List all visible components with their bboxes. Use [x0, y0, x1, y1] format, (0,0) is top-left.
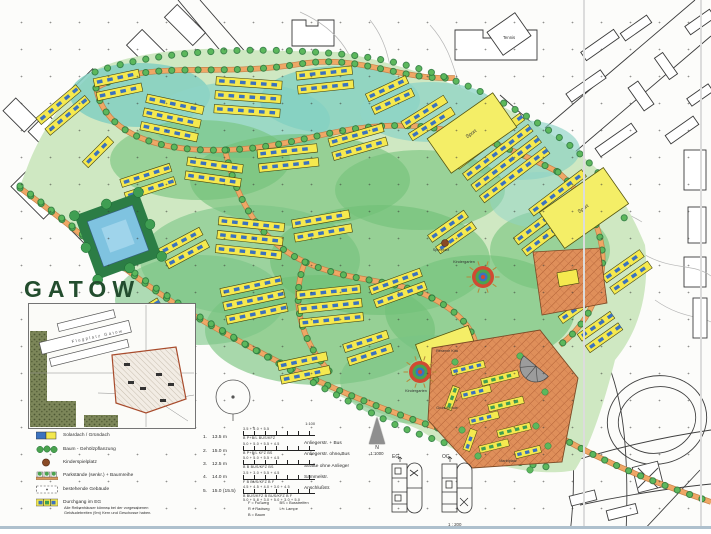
- street-type-list: Anliegerstr. + BusAnliegerstr. ohne BusS…: [304, 438, 350, 494]
- legend-item: Parkstände (senkr.) + Baumreihe: [36, 469, 133, 482]
- map-scale: 1:1000: [364, 451, 390, 456]
- plan-title: GATOW: [24, 276, 140, 303]
- street-type: Anschlußstr.: [304, 483, 350, 494]
- legend-item: bestehende Gebäude: [36, 483, 133, 496]
- map-label: Reserve Kita: [436, 349, 459, 353]
- legend-swatch-playground: [36, 458, 58, 467]
- abbrev-entry: L = Lampe: [280, 506, 309, 512]
- legend-item: Solardach / Gründach: [36, 429, 133, 442]
- north-arrow: N 1:1000: [364, 417, 390, 456]
- legend-label: Kinderspielplatz: [63, 460, 97, 465]
- legend-swatch-trees: [36, 445, 58, 454]
- legend-item: Baum - Gehölzpflanzung: [36, 442, 133, 455]
- legend-label: Solardach / Gründach: [63, 433, 110, 438]
- map-label: Kindergarten: [453, 260, 475, 264]
- legend-swatch-parking: [36, 471, 58, 480]
- abbreviation-list: F = FußwegR = RadwegB = BaumBS = Busstre…: [248, 500, 309, 518]
- abbrev-entry: F = Fußweg: [248, 500, 270, 506]
- north-arrow-icon: [369, 417, 385, 444]
- dimension-row: 4.14.0 m: [203, 471, 236, 484]
- legend-item: Kinderspielplatz: [36, 456, 133, 469]
- sheet-margin: [0, 529, 711, 534]
- dimension-row: 3.12.5 m: [203, 458, 236, 471]
- street-type: Straße ohne Anlieger: [304, 461, 350, 472]
- legend-swatch-existing: [36, 485, 58, 494]
- plan-label: OG: [442, 454, 450, 460]
- map-label: Tennis: [503, 35, 515, 40]
- fold-line-left: [583, 0, 585, 534]
- fold-line-right: [700, 0, 702, 534]
- dimension-list: 1.13.5 m2.15.0 m3.12.5 m4.14.0 m5.15.0 (…: [203, 431, 236, 498]
- legend-swatch-passage: [36, 498, 58, 507]
- site-plan-sheet: TennisSportSportSpielplatzKindergartenRe…: [0, 0, 711, 534]
- location-inset-map: Flugplatz Gatow: [28, 303, 196, 429]
- legend-swatch-solar: [36, 431, 58, 440]
- map-label: Spielplatz: [433, 248, 450, 252]
- street-type: Anliegerstr. + Bus: [304, 438, 350, 449]
- abbrev-entry: B = Baum: [248, 512, 270, 518]
- dimension-row: 1.13.5 m: [203, 431, 236, 444]
- legend-note: Alle Reihenhäuser können bei der vorgese…: [64, 506, 164, 516]
- street-type: Anliegerstr. ohne Bus: [304, 449, 350, 460]
- unit-floor-plans: EGOG1 : 200: [388, 450, 483, 530]
- dimension-row: 5.15.0 (15.5): [203, 485, 236, 498]
- abbrev-entry: R = Radweg: [248, 506, 270, 512]
- street-type: Sammelstr.: [304, 472, 350, 483]
- map-label: Grundschule: [436, 406, 458, 410]
- map-label: Marktplatz: [499, 459, 517, 463]
- legend: Solardach / GründachBaum - Gehölzpflanzu…: [36, 429, 133, 509]
- legend-label: bestehende Gebäude: [63, 487, 109, 492]
- dimension-row: 2.15.0 m: [203, 444, 236, 457]
- legend-label: Baum - Gehölzpflanzung: [63, 447, 116, 452]
- legend-label: Parkstände (senkr.) + Baumreihe: [63, 473, 133, 478]
- abbrev-entry: BS = Busstreifen: [280, 500, 309, 506]
- sections-scale: 1:100: [243, 421, 315, 426]
- map-label: Kindergarten: [405, 389, 427, 393]
